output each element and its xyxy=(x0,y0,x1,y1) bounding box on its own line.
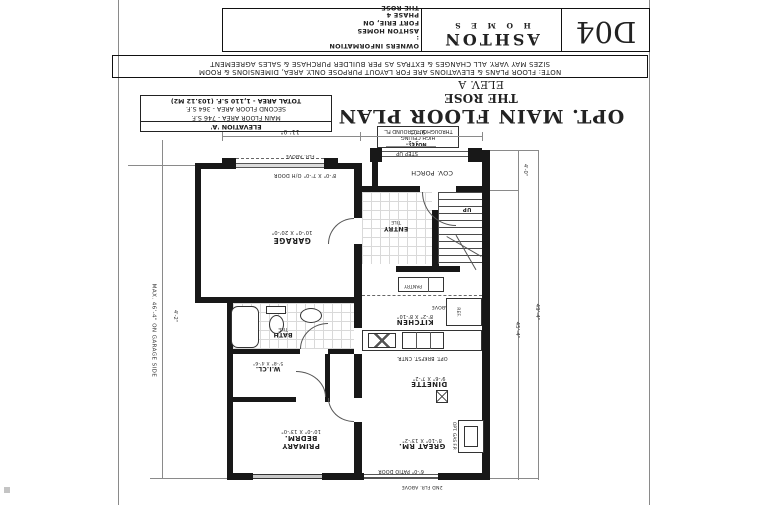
owners-line: ASHTON HOMES xyxy=(325,26,419,34)
scan-noise xyxy=(4,487,10,493)
plan-title: OPT. MAIN FLOOR PLAN THE ROSE ELEV. A xyxy=(330,83,632,127)
sheet-code: D04 xyxy=(563,13,649,49)
dinette-name: DINETTE xyxy=(400,380,458,388)
patio-door-track xyxy=(364,477,438,478)
kitchen-name: KITCHEN xyxy=(386,318,444,326)
pantry-label: PANTRY xyxy=(398,281,428,288)
wall-under-stair xyxy=(396,266,460,272)
stairs-up-label: UP xyxy=(458,204,476,212)
garage-dims: 10'-0" X 20'-0" xyxy=(262,229,322,235)
kitchen-range xyxy=(402,332,444,349)
title-block-divider-2 xyxy=(561,9,562,51)
bath-finish: TILE xyxy=(262,326,304,331)
room-label-great-room: GREAT RM. 8'-10" X 13'-2" xyxy=(396,426,448,450)
wall-porch-left xyxy=(372,150,378,186)
patio-door xyxy=(364,474,438,479)
dim-label-45-4: 45'-4" xyxy=(512,313,520,347)
fireplace-firebox xyxy=(464,426,478,447)
kitchen-sink xyxy=(368,333,396,348)
porch-step-line xyxy=(378,156,482,157)
wicl-door-swing xyxy=(296,371,326,397)
great-room-name: GREAT RM. xyxy=(396,442,448,450)
wall-wicl-south xyxy=(233,397,296,402)
bedroom-door-swing xyxy=(328,398,354,422)
dim-label-5-2: 5'-2" xyxy=(392,138,432,145)
wall-party xyxy=(354,422,362,480)
dim-label-11-0: 11'-0" xyxy=(265,127,315,135)
wall-rear xyxy=(322,473,364,480)
title-block: OWNERS INFORMATION : ASHTON HOMES FORT E… xyxy=(222,8,650,52)
disclaimer-line-1: NOTE: FLOOR PLANS & ELEVATIONS ARE FOR L… xyxy=(115,68,645,76)
room-label-garage: GARAGE 10'-0" X 20'-0" xyxy=(262,226,322,244)
wall-bath-south xyxy=(233,349,300,354)
dim-label-9-0: 9'-0" xyxy=(396,127,440,135)
builder-logo-sub: H O M E S xyxy=(423,20,559,29)
extension-line xyxy=(490,150,539,151)
disclaimer-line-2: SIZES MAY VARY. ALL CHANGES & EXTRAS AS … xyxy=(115,60,645,68)
dim-tick xyxy=(222,132,223,141)
floor-above-label-garage: FLR. ABOVE xyxy=(268,151,332,158)
wall-party xyxy=(354,244,362,328)
garage-door-jamb-right xyxy=(324,158,338,169)
scanned-floor-plan-sheet: { "sheet": { "title_block": { "code": "D… xyxy=(0,0,760,505)
garage-overhead-door xyxy=(236,167,324,168)
kitchen-dims: 8'-2" X 8'-10" xyxy=(386,312,444,318)
bath-sink xyxy=(300,308,322,323)
primary-name: PRIMARY BEDRM. xyxy=(268,434,334,451)
title-block-divider-1 xyxy=(421,9,422,51)
extension-line xyxy=(490,190,519,191)
second-floor-above-label: 2ND FLR. ABOVE xyxy=(390,482,454,489)
breakfast-counter-label: OPT. BRKFST. CNTR. xyxy=(380,353,464,360)
dim-label-49-4: 49'-4" xyxy=(532,295,540,329)
garage-name: GARAGE xyxy=(262,235,322,244)
porch-pier-right xyxy=(468,148,482,162)
disclaimer-text: NOTE: FLOOR PLANS & ELEVATIONS ARE FOR L… xyxy=(115,58,645,76)
floor-above-dashed-line xyxy=(236,158,324,159)
wicl-name: W.I.CL. xyxy=(244,365,292,372)
room-label-entry: ENTRY TILE xyxy=(374,216,418,232)
wall-rear xyxy=(438,473,490,480)
wall-rear xyxy=(227,473,253,480)
toilet-tank xyxy=(266,306,286,314)
plan-title-model: THE ROSE xyxy=(330,90,632,104)
wall-party xyxy=(354,354,362,398)
owners-line: THE ROSE xyxy=(325,3,419,11)
refrigerator-label: REF. xyxy=(452,303,460,321)
dim-tick xyxy=(360,132,361,141)
extension-line xyxy=(490,478,539,479)
garage-man-door-swing xyxy=(328,218,354,244)
builder-logo: ASHTON H O M E S xyxy=(423,14,559,48)
garage-door-jamb-left xyxy=(222,158,236,169)
bedroom-window xyxy=(253,474,322,479)
owners-info: OWNERS INFORMATION : ASHTON HOMES FORT E… xyxy=(325,11,419,49)
area-row-main: MAIN FLOOR AREA - 746 S.F. xyxy=(141,112,331,121)
plan-title-main: OPT. MAIN FLOOR PLAN xyxy=(330,105,632,127)
dim-label-4-2: 4'-2" xyxy=(170,303,178,329)
owners-line: FORT ERIE, ON xyxy=(325,18,419,26)
porch-step-line xyxy=(378,151,482,152)
disclaimer-strip: NOTE: FLOOR PLANS & ELEVATIONS ARE FOR L… xyxy=(112,55,648,78)
builder-logo-name: ASHTON xyxy=(423,29,559,48)
area-row-second: SECOND FLOOR AREA - 364 S.F. xyxy=(141,104,331,113)
area-row-total: TOTAL AREA - 1,110 S.F. (103.12 M2) xyxy=(141,95,331,104)
dim-label-4-0: 4'-0" xyxy=(520,159,528,181)
entry-finish: TILE xyxy=(374,219,418,224)
entry-name: ENTRY xyxy=(374,224,418,232)
room-label-primary-bedroom: PRIMARY BEDRM. 10'-0" X 13'-0" xyxy=(268,424,334,450)
dimension-line-step xyxy=(386,146,436,147)
dimension-line-top xyxy=(222,136,482,137)
extension-line xyxy=(150,478,227,479)
bath-name: BATH xyxy=(262,331,304,338)
pantry-divider xyxy=(428,277,429,292)
floor-vent-marker xyxy=(436,390,448,403)
dimension-line-left xyxy=(162,140,163,478)
dim-tick xyxy=(482,132,483,141)
room-label-bath: BATH TILE xyxy=(262,324,304,338)
room-label-porch: COV. PORCH xyxy=(402,160,462,176)
extension-line xyxy=(128,165,195,166)
garage-side-max-note: MAX. 46'-4" ON GARAGE SIDE xyxy=(148,256,157,406)
primary-dims: 10'-0" X 13'-0" xyxy=(268,428,334,434)
overhead-door-label: 8'-0" X 7'-0" O/H DOOR xyxy=(250,170,360,177)
great-room-dims: 8'-10" X 13'-2" xyxy=(396,436,448,442)
range-divider xyxy=(416,332,417,349)
owners-heading: OWNERS INFORMATION : xyxy=(325,34,419,49)
wall-garage-left xyxy=(195,163,201,303)
room-label-wicl: W.I.CL. 5'-8" X 4'-6" xyxy=(244,356,292,372)
patio-door-label: 6'-0" PATIO DOOR xyxy=(368,466,434,473)
plan-title-elevation: ELEV. A xyxy=(330,77,632,90)
range-divider xyxy=(430,332,431,349)
gas-fireplace-label: OPT. GAS F.P. xyxy=(448,411,456,461)
owners-line: PHASE 4 xyxy=(325,11,419,19)
dinette-dims: 9'-6" X 7'-2" xyxy=(400,374,458,380)
bathtub xyxy=(231,306,259,348)
sheet-border-right xyxy=(649,0,650,505)
wall-bath-south xyxy=(328,349,354,354)
room-label-dinette: DINETTE 9'-6" X 7'-2" xyxy=(400,372,458,388)
floor-above-dashed-line-kitchen xyxy=(362,295,482,296)
wicl-dims: 5'-8" X 4'-6" xyxy=(244,360,292,365)
room-label-kitchen: KITCHEN 8'-2" X 8'-10" xyxy=(386,310,444,326)
